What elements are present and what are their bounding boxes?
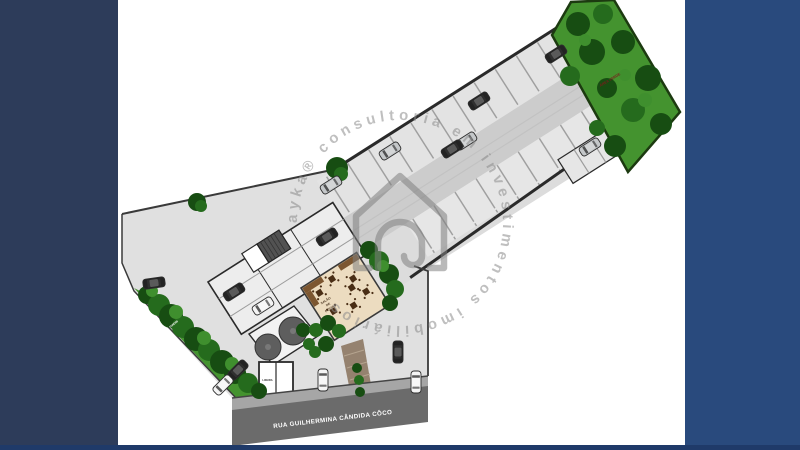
right-navy-bar xyxy=(685,0,800,450)
tree-blob xyxy=(382,295,398,311)
site-plan-image: SALÃO DE FESTAS LIXEIRA RUA GUILHERMINA … xyxy=(0,0,800,450)
tree-blob xyxy=(197,331,211,345)
trash-room-label: LIXEIRA xyxy=(262,378,272,382)
tree-blob xyxy=(579,34,591,46)
tree-blob xyxy=(650,113,672,135)
tree-blob xyxy=(195,200,207,212)
tree-blob xyxy=(566,12,590,36)
tree-blob xyxy=(169,305,183,319)
tree-blob xyxy=(604,135,626,157)
tree-blob xyxy=(309,346,321,358)
car xyxy=(393,341,403,363)
car xyxy=(318,369,328,391)
tree-blob xyxy=(589,120,605,136)
tree-blob xyxy=(560,66,580,86)
tree-blob xyxy=(593,4,613,24)
left-navy-bar xyxy=(0,0,118,450)
tree-blob xyxy=(352,363,362,373)
tree-blob xyxy=(296,323,310,337)
tree-blob xyxy=(619,69,631,81)
tree-blob xyxy=(251,383,267,399)
tree-blob xyxy=(354,375,364,385)
tree-blob xyxy=(635,65,661,91)
car xyxy=(411,371,421,393)
tree-blob xyxy=(332,324,346,338)
tree-blob xyxy=(611,30,635,54)
tree-blob xyxy=(638,93,652,107)
bottom-navy-line xyxy=(0,445,800,450)
tree-blob xyxy=(355,387,365,397)
